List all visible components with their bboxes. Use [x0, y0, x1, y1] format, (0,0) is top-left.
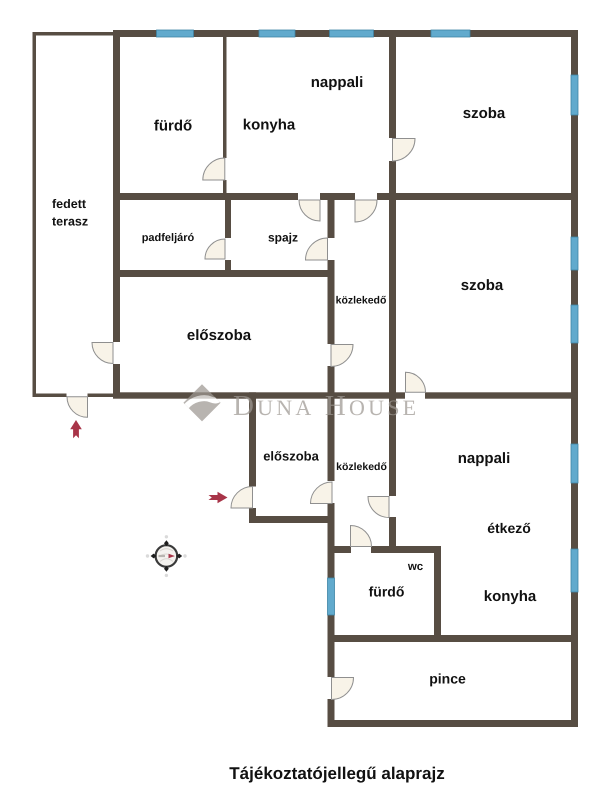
- svg-text:közlekedő: közlekedő: [336, 461, 387, 473]
- svg-text:nappali: nappali: [458, 450, 511, 467]
- svg-text:DUNA HOUSE: DUNA HOUSE: [233, 390, 419, 422]
- svg-text:fedett: fedett: [52, 197, 87, 211]
- svg-text:étkező: étkező: [487, 520, 531, 536]
- svg-text:padfeljáró: padfeljáró: [142, 232, 195, 244]
- svg-text:szoba: szoba: [463, 105, 506, 122]
- svg-text:nappali: nappali: [311, 74, 364, 91]
- svg-text:szoba: szoba: [461, 277, 504, 294]
- svg-text:fürdő: fürdő: [369, 584, 405, 600]
- svg-text:wc: wc: [407, 561, 424, 573]
- svg-text:előszoba: előszoba: [263, 449, 319, 464]
- svg-text:terasz: terasz: [52, 215, 88, 229]
- svg-text:Tájékoztatójellegű alaprajz: Tájékoztatójellegű alaprajz: [229, 764, 444, 783]
- svg-text:előszoba: előszoba: [187, 327, 252, 344]
- svg-text:fürdő: fürdő: [154, 118, 192, 135]
- svg-text:közlekedő: közlekedő: [336, 295, 387, 307]
- svg-text:konyha: konyha: [243, 117, 296, 134]
- svg-text:konyha: konyha: [484, 588, 537, 605]
- svg-text:pince: pince: [429, 671, 466, 687]
- svg-text:spajz: spajz: [268, 231, 298, 245]
